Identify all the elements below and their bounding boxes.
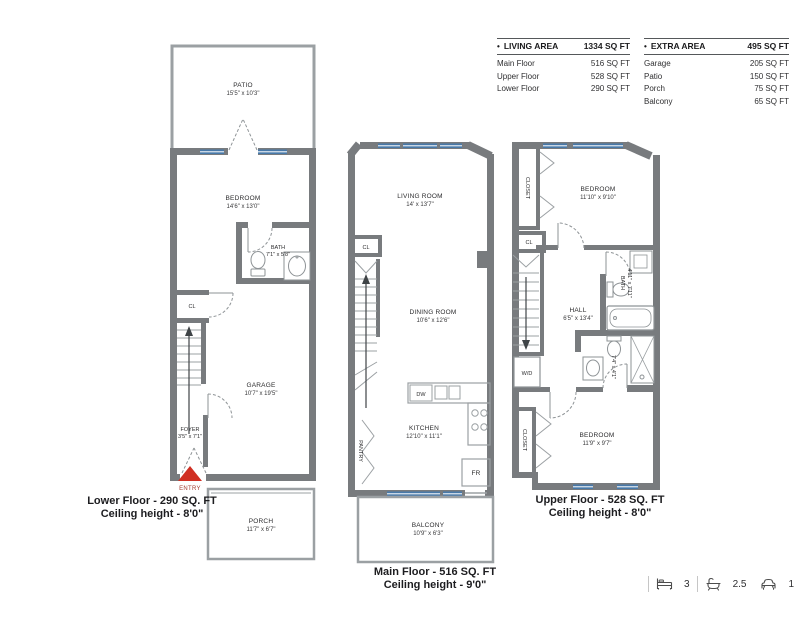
living-area-header: • LIVING AREA 1334 SQ FT [497, 38, 630, 55]
floor-area-text: Lower Floor - 290 SQ. FT [62, 495, 242, 508]
sink-icon [289, 256, 306, 276]
porch-label: PORCH [249, 518, 274, 525]
foyer-label: FOYER [181, 427, 200, 433]
main-corner-wall [468, 145, 491, 156]
living-room-dims: 14' x 13'7" [406, 202, 433, 208]
washer-dryer-label: W/D [522, 371, 533, 377]
balcony-dims: 10'9" x 6'3" [413, 531, 443, 537]
legend-row: Porch 75 SQ FT [644, 83, 789, 96]
closet-bifold-door [536, 412, 551, 468]
sink-icon [634, 255, 647, 268]
pantry-label: PANTRY [357, 440, 363, 462]
bullet-icon: • [497, 42, 500, 51]
hall-label: HALL [569, 307, 586, 314]
main-floor-caption: Main Floor - 516 SQ. FT Ceiling height -… [345, 566, 525, 591]
living-area-legend: • LIVING AREA 1334 SQ FT Main Floor 516 … [497, 38, 630, 96]
closet-label: CLOSET [521, 429, 527, 452]
stove-icon [468, 403, 490, 445]
beds-stat: 3 [648, 576, 697, 592]
legend-row-label: Balcony [644, 96, 672, 109]
floorplan-page: PATIO 15'5" x 10'3" BEDROOM 14'6" x 13'0… [0, 0, 800, 619]
foyer-dims: 3'5" x 7'1" [178, 434, 202, 440]
patio-dims: 15'5" x 10'3" [227, 91, 260, 97]
hall-dims: 6'5" x 13'4" [563, 316, 593, 322]
bedroom-label: BEDROOM [580, 432, 615, 439]
toilet-icon [607, 282, 613, 297]
patio-outline [172, 46, 314, 148]
balcony-outline [358, 497, 493, 562]
lower-floor-plan: PATIO 15'5" x 10'3" BEDROOM 14'6" x 13'0… [170, 46, 316, 559]
legend-row-label: Main Floor [497, 58, 535, 71]
extra-area-legend: • EXTRA AREA 495 SQ FT Garage 205 SQ FT … [644, 38, 789, 108]
legend-row-label: Patio [644, 71, 662, 84]
baths-count: 2.5 [733, 579, 747, 590]
legend-row: Patio 150 SQ FT [644, 71, 789, 84]
sink-icon [587, 360, 600, 376]
legend-row-value: 75 SQ FT [754, 83, 789, 96]
floor-area-text: Main Floor - 516 SQ. FT [345, 566, 525, 579]
living-room-label: LIVING ROOM [397, 193, 443, 200]
closet-label: CL [362, 245, 369, 251]
legend-row-value: 528 SQ FT [591, 71, 630, 84]
bedroom2-door-arc [550, 392, 576, 418]
sink-icon [449, 386, 460, 399]
porch-dims: 11'7" x 6'7" [246, 527, 275, 533]
balcony-label: BALCONY [412, 522, 445, 529]
bed-icon [656, 577, 673, 591]
floor-area-text: Upper Floor - 528 SQ. FT [512, 494, 688, 507]
bullet-icon: • [644, 42, 647, 51]
main-corner-wall [350, 144, 359, 155]
extra-area-title: EXTRA AREA [651, 41, 706, 51]
foyer-door-arc [208, 394, 232, 418]
burner-icon [472, 424, 478, 430]
bath-dims: 7'1" x 5'8" [266, 252, 290, 258]
faucet-icon [296, 256, 298, 258]
burner-icon [481, 424, 487, 430]
drain-icon [640, 375, 644, 379]
dishwasher-label: DW [416, 392, 426, 398]
legend-row-label: Garage [644, 58, 671, 71]
parking-stat: 1 [753, 576, 800, 592]
legend-row-value: 65 SQ FT [754, 96, 789, 109]
bedroom-dims: 11'10" x 9'10" [580, 195, 616, 201]
entry-door [182, 448, 206, 473]
bedroom-label: BEDROOM [226, 195, 261, 202]
bathtub-icon [705, 577, 722, 591]
bedroom-label: BEDROOM [581, 186, 616, 193]
ensuite-fixtures [583, 336, 654, 383]
car-icon [760, 577, 777, 591]
extra-area-header: • EXTRA AREA 495 SQ FT [644, 38, 789, 55]
legend-row-label: Lower Floor [497, 83, 539, 96]
bedroom-dims: 14'6" x 13'0" [227, 204, 260, 210]
bath-door-arc [248, 228, 272, 252]
dining-room-dims: 10'6" x 12'6" [417, 318, 450, 324]
extra-area-total: 495 SQ FT [747, 41, 789, 51]
toilet-icon [607, 336, 621, 341]
drain-icon [614, 317, 617, 320]
garage-label: GARAGE [246, 382, 275, 389]
legend-row: Balcony 65 SQ FT [644, 96, 789, 109]
entry-label: ENTRY [179, 486, 201, 492]
main-stairs [355, 261, 377, 408]
legend-row-value: 290 SQ FT [591, 83, 630, 96]
parking-count: 1 [788, 579, 794, 590]
garage-dims: 10'7" x 19'5" [245, 391, 278, 397]
cl-door-arc [209, 293, 233, 317]
baths-stat: 2.5 [697, 576, 754, 592]
stairs-up-arrow-icon [185, 326, 193, 336]
fridge-label: FR [471, 470, 480, 477]
lower-windows [200, 150, 287, 155]
burner-icon [481, 410, 487, 416]
lower-stairs [177, 326, 201, 434]
legend-row-label: Upper Floor [497, 71, 539, 84]
bedroom-door-arc [558, 223, 584, 248]
patio-door [229, 119, 257, 150]
closet-bifold-door [540, 152, 554, 218]
legend-row-value: 516 SQ FT [591, 58, 630, 71]
closet-label: CLOSET [524, 177, 530, 200]
living-area-total: 1334 SQ FT [584, 41, 630, 51]
sink-icon [435, 386, 447, 399]
entry-arrow-icon [178, 466, 202, 481]
closet-label: CL [525, 240, 532, 246]
kitchen-label: KITCHEN [409, 425, 439, 432]
ensuite-dims: 7'4" x 4'1" [610, 355, 616, 379]
legend-row-label: Porch [644, 83, 665, 96]
burner-icon [472, 410, 478, 416]
closet-label: CL [188, 304, 195, 310]
legend-row: Garage 205 SQ FT [644, 58, 789, 71]
dining-room-label: DINING ROOM [410, 309, 457, 316]
legend-row: Main Floor 516 SQ FT [497, 58, 630, 71]
upper-floor-caption: Upper Floor - 528 SQ. FT Ceiling height … [512, 494, 688, 519]
ceiling-height-text: Ceiling height - 9'0" [345, 579, 525, 592]
toilet-icon [251, 269, 265, 276]
main-floor-plan: LIVING ROOM 14' x 13'7" CL DINING ROOM 1… [348, 142, 494, 562]
property-stats: 3 2.5 1 [648, 575, 800, 593]
bath-label: BATH [619, 276, 625, 290]
legend-row: Upper Floor 528 SQ FT [497, 71, 630, 84]
patio-label: PATIO [233, 82, 253, 89]
living-area-title: LIVING AREA [504, 41, 558, 51]
beds-count: 3 [684, 579, 690, 590]
legend-row-value: 205 SQ FT [750, 58, 789, 71]
toilet-icon [251, 252, 265, 269]
upper-corner-wall [626, 145, 651, 156]
legend-row-value: 150 SQ FT [750, 71, 789, 84]
bedroom-dims: 11'9" x 9'7" [582, 441, 611, 447]
ceiling-height-text: Ceiling height - 8'0" [62, 508, 242, 521]
legend-row: Lower Floor 290 SQ FT [497, 83, 630, 96]
upper-floor-plan: CLOSET BEDROOM 11'10" x 9'10" CL HALL 6'… [512, 142, 660, 490]
bath-label: BATH [271, 245, 285, 251]
lower-floor-caption: Lower Floor - 290 SQ. FT Ceiling height … [62, 495, 242, 520]
bath-dims: 4'11" x 7'11" [626, 268, 632, 297]
ceiling-height-text: Ceiling height - 8'0" [512, 507, 688, 520]
kitchen-dims: 12'10" x 11'1" [406, 434, 442, 440]
